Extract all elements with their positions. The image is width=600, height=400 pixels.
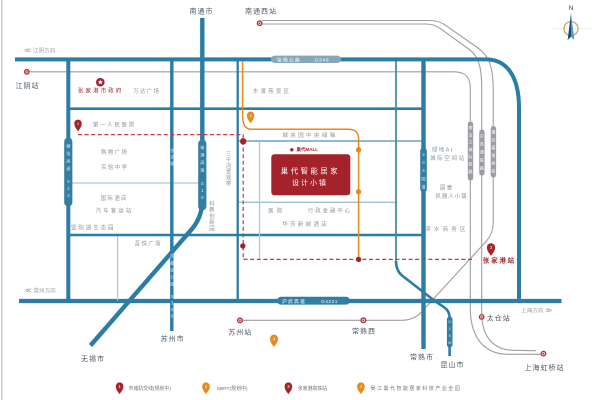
svg-text:高: 高: [491, 160, 495, 166]
svg-text:沪武高速: 沪武高速: [282, 298, 306, 305]
svg-text:≪ 常州方向: ≪ 常州方向: [25, 287, 57, 295]
svg-text:路: 路: [469, 168, 473, 174]
svg-text:苏: 苏: [491, 136, 495, 142]
svg-text:高: 高: [200, 159, 204, 166]
svg-text:N: N: [569, 5, 574, 12]
svg-text:苏州站: 苏州站: [228, 328, 252, 337]
svg-text:通: 通: [480, 149, 484, 155]
svg-text:城: 城: [469, 146, 473, 152]
svg-text:千: 千: [226, 156, 233, 164]
svg-text:张家港高铁站: 张家港高铁站: [298, 385, 327, 392]
svg-text:G: G: [448, 320, 451, 324]
svg-text:嘉: 嘉: [491, 144, 495, 150]
svg-text:甬: 甬: [491, 152, 495, 158]
svg-text:泾: 泾: [170, 155, 174, 160]
svg-text:太仓站: 太仓站: [487, 314, 511, 323]
svg-text:河: 河: [226, 162, 233, 170]
svg-text:塘: 塘: [66, 143, 70, 150]
svg-text:华芳新城酒店: 华芳新城酒店: [282, 220, 329, 228]
svg-text:铁: 铁: [469, 161, 473, 167]
svg-text:虞: 虞: [170, 260, 174, 267]
svg-text:高: 高: [66, 158, 70, 165]
svg-text:行政金融中心: 行政金融中心: [308, 207, 352, 215]
svg-text:昆山市: 昆山市: [441, 360, 465, 369]
svg-text:沿: 沿: [469, 131, 473, 137]
svg-text:机器人小镇: 机器人小镇: [436, 192, 468, 200]
svg-text:滨水商务区: 滨水商务区: [425, 225, 468, 233]
svg-text:路: 路: [480, 165, 484, 171]
svg-text:上海虹桥站: 上海虹桥站: [525, 363, 565, 372]
svg-text:万达广场: 万达广场: [133, 87, 160, 95]
svg-text:医院: 医院: [268, 207, 285, 215]
svg-text:吾悦广场: 吾悦广场: [135, 240, 162, 248]
svg-text:暨阳湖生态园: 暨阳湖生态园: [71, 223, 115, 231]
svg-text:张杨公路: 张杨公路: [277, 56, 301, 63]
svg-text:城际空间站: 城际空间站: [430, 154, 466, 162]
svg-text:S: S: [171, 294, 174, 299]
svg-text:沪: 沪: [480, 133, 484, 139]
svg-text:汽车客运站: 汽车客运站: [96, 206, 134, 214]
svg-text:南通西站: 南通西站: [245, 6, 277, 15]
svg-text:南通市: 南通市: [190, 6, 214, 15]
svg-text:江: 江: [469, 139, 473, 145]
svg-text:G346: G346: [315, 57, 330, 63]
svg-text:W: W: [448, 341, 452, 345]
svg-text:国际酒店: 国际酒店: [101, 194, 128, 202]
svg-text:吴江巢代智能居家科技产业全园: 吴江巢代智能居家科技产业全园: [371, 385, 462, 392]
svg-text:≪ 江阴方向: ≪ 江阴方向: [24, 46, 56, 54]
svg-text:设计小镇: 设计小镇: [292, 178, 328, 187]
svg-text:巢代智能居家: 巢代智能居家: [281, 166, 340, 175]
svg-text:上海方向 ≫: 上海方向 ≫: [521, 306, 552, 314]
svg-text:1: 1: [449, 327, 451, 331]
svg-text:城央园中央绿轴: 城央园中央绿轴: [282, 131, 337, 139]
svg-text:常熟西: 常熟西: [352, 327, 376, 336]
svg-text:南: 南: [469, 124, 473, 130]
svg-text:苏: 苏: [170, 253, 174, 260]
svg-text:SBRT(规划中): SBRT(规划中): [217, 385, 248, 392]
svg-text:苏: 苏: [480, 141, 484, 147]
svg-text:实验中学: 实验中学: [101, 163, 128, 171]
svg-text:巢代MALL: 巢代MALL: [296, 146, 319, 153]
svg-text:苏州市: 苏州市: [161, 334, 185, 343]
svg-text:江阴站: 江阴站: [16, 81, 40, 90]
svg-text:锡: 锡: [200, 144, 204, 151]
svg-text:创: 创: [209, 212, 216, 220]
svg-text:东渡苑景区: 东渡苑景区: [253, 87, 291, 95]
svg-text:际: 际: [469, 153, 473, 159]
svg-text:国泰: 国泰: [440, 183, 454, 191]
svg-text:市域轨交线(规划中): 市域轨交线(规划中): [129, 385, 172, 392]
svg-text:S: S: [201, 181, 204, 186]
svg-text:铁: 铁: [491, 168, 495, 174]
svg-text:园: 园: [209, 225, 216, 232]
svg-text:张: 张: [170, 148, 174, 153]
svg-text:新: 新: [209, 218, 216, 226]
svg-text:5: 5: [449, 334, 451, 338]
svg-text:科: 科: [209, 200, 216, 208]
svg-text:购物广场: 购物广场: [101, 148, 128, 156]
svg-text:S: S: [67, 179, 70, 184]
svg-text:张家港市政府: 张家港市政府: [78, 87, 124, 95]
svg-text:G4221: G4221: [321, 299, 338, 305]
svg-text:第一人民医院: 第一人民医院: [93, 120, 136, 128]
svg-text:通: 通: [491, 129, 495, 135]
svg-text:无锡市: 无锡市: [81, 354, 105, 363]
svg-text:带: 带: [226, 181, 233, 188]
svg-text:张家港站: 张家港站: [483, 256, 516, 265]
svg-text:铁: 铁: [480, 157, 484, 163]
svg-text:路: 路: [170, 161, 174, 166]
svg-text:常熟市: 常熟市: [410, 353, 434, 362]
svg-text:绿地AI: 绿地AI: [432, 145, 454, 153]
svg-text:教: 教: [209, 206, 216, 214]
